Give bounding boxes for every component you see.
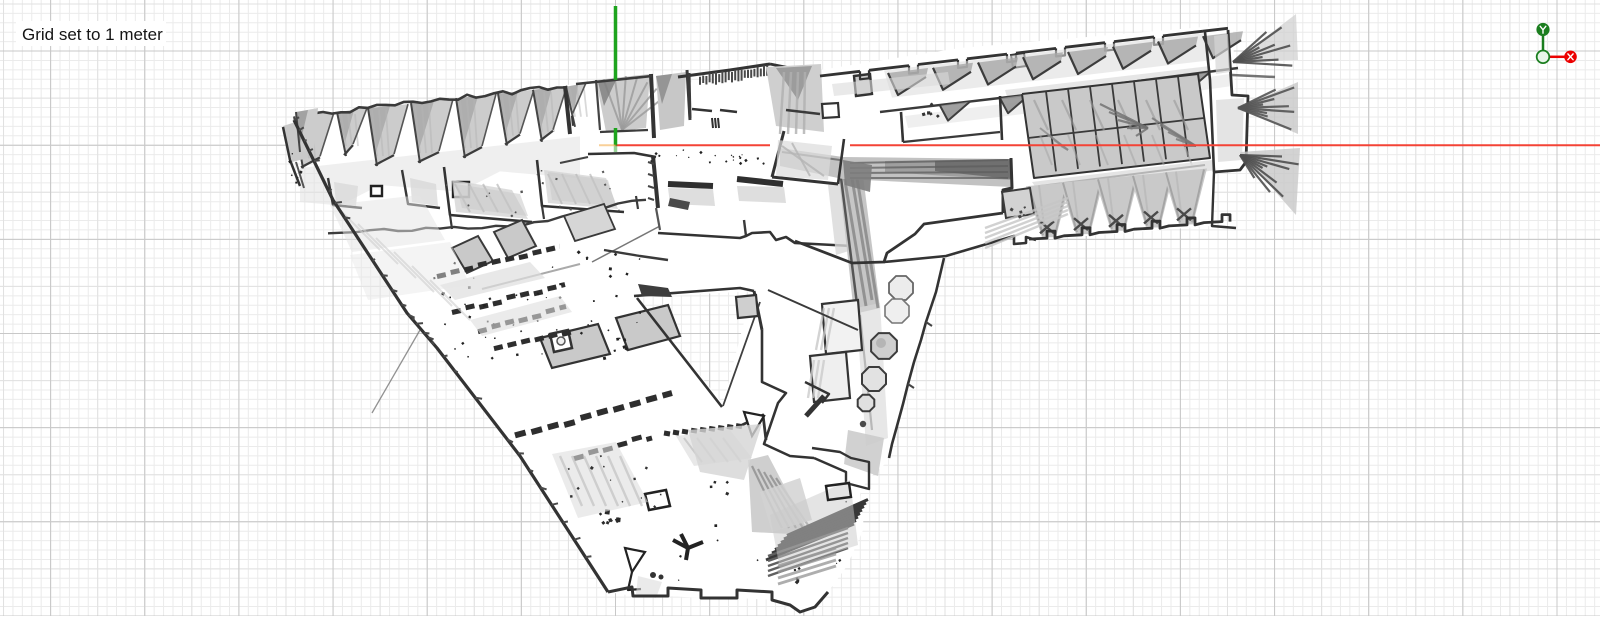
svg-text:Grid set to 1 meter: Grid set to 1 meter: [22, 25, 163, 44]
